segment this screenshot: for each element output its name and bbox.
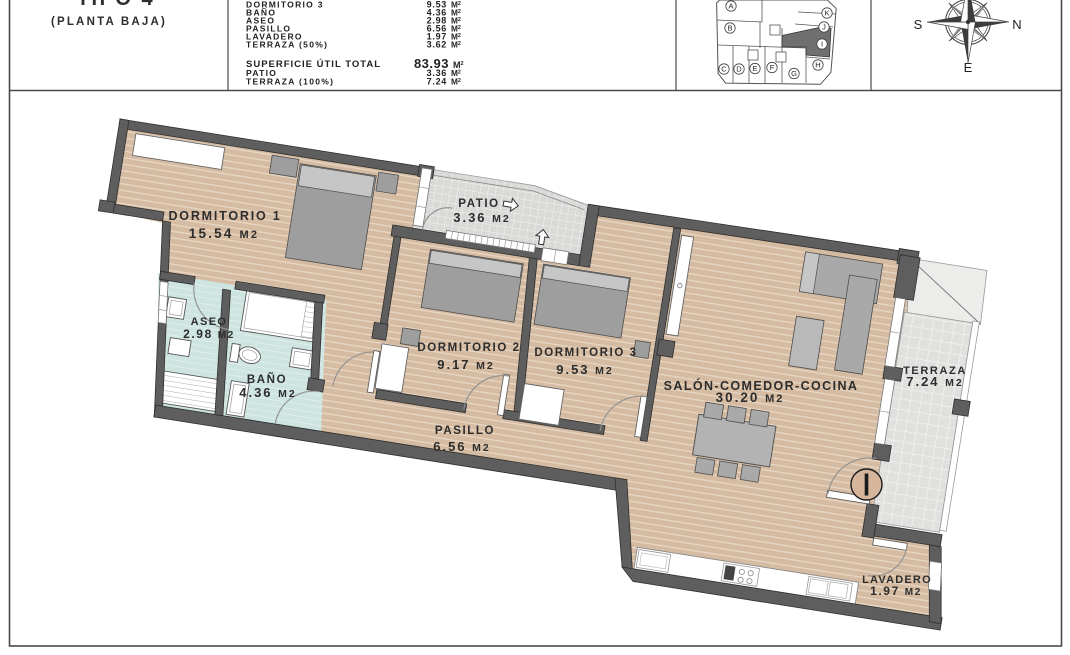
svg-text:1.97 M2: 1.97 M2	[870, 584, 922, 598]
svg-text:G: G	[791, 69, 797, 78]
svg-text:DORMITORIO 2: DORMITORIO 2	[417, 342, 520, 354]
svg-text:K: K	[824, 9, 829, 18]
svg-text:N: N	[1012, 17, 1021, 32]
svg-text:J: J	[822, 23, 826, 32]
svg-text:4.36 M2: 4.36 M2	[239, 385, 297, 400]
svg-text:9.17 M2: 9.17 M2	[437, 357, 495, 372]
svg-text:3.36 M2: 3.36 M2	[453, 210, 511, 225]
svg-text:15.54 M2: 15.54 M2	[189, 226, 259, 241]
svg-text:7.24 M2: 7.24 M2	[906, 374, 964, 389]
svg-text:9.53 M2: 9.53 M2	[556, 362, 614, 377]
svg-text:DORMITORIO 1: DORMITORIO 1	[168, 209, 281, 223]
svg-text:TERRAZA (50%): TERRAZA (50%)	[246, 40, 328, 50]
svg-text:(PLANTA BAJA): (PLANTA BAJA)	[51, 16, 167, 28]
svg-text:DORMITORIO 3: DORMITORIO 3	[534, 347, 637, 359]
svg-text:I: I	[821, 40, 823, 49]
svg-text:7.24: 7.24	[427, 77, 447, 87]
svg-text:30.20 M2: 30.20 M2	[716, 390, 785, 405]
svg-text:PATIO: PATIO	[458, 198, 499, 210]
svg-text:B: B	[727, 24, 732, 33]
svg-text:F: F	[770, 63, 775, 72]
svg-text:H: H	[815, 61, 820, 70]
svg-text:A: A	[728, 2, 733, 11]
svg-text:C: C	[721, 65, 727, 74]
svg-text:D: D	[736, 65, 742, 74]
svg-text:TIPO 4: TIPO 4	[77, 0, 155, 10]
svg-text:TERRAZA (100%): TERRAZA (100%)	[246, 77, 334, 87]
svg-text:PASILLO: PASILLO	[435, 425, 495, 437]
svg-text:3.62: 3.62	[427, 40, 447, 50]
svg-text:S: S	[914, 17, 923, 32]
svg-text:E: E	[964, 60, 973, 75]
svg-text:E: E	[752, 64, 757, 73]
svg-text:2.98 M2: 2.98 M2	[183, 327, 235, 341]
svg-text:6.56 M2: 6.56 M2	[433, 439, 491, 454]
